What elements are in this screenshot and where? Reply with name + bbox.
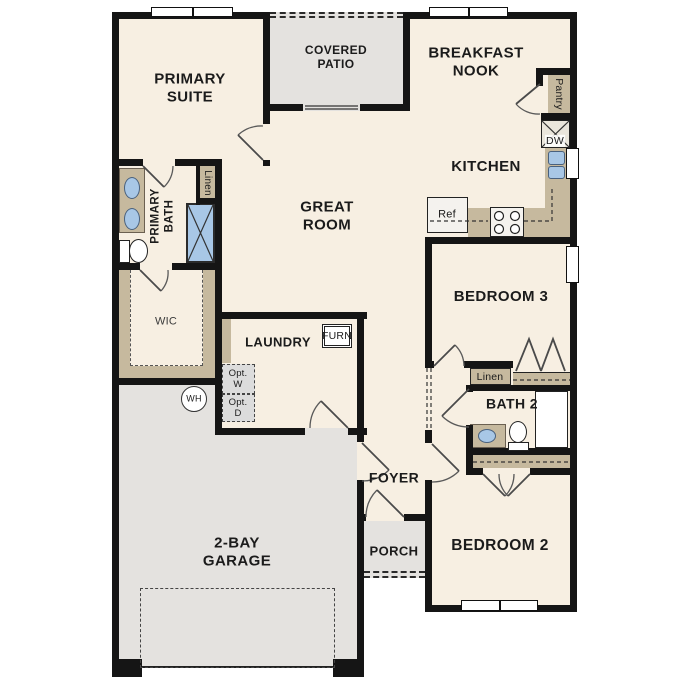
wall bbox=[199, 198, 215, 204]
primary-suite-window bbox=[151, 7, 233, 17]
label-pantry: Pantry bbox=[553, 78, 565, 110]
primary-sink-2 bbox=[124, 208, 140, 230]
room-label-garage: 2-BAY GARAGE bbox=[193, 534, 281, 569]
wall bbox=[570, 12, 577, 612]
wall bbox=[333, 659, 364, 677]
bedroom2-window bbox=[461, 600, 538, 611]
wall bbox=[466, 385, 473, 392]
room-label-porch: PORCH bbox=[370, 543, 419, 558]
wall bbox=[172, 263, 215, 270]
room-label-covered-patio: COVERED PATIO bbox=[298, 43, 374, 71]
label-dishwasher: DW bbox=[545, 135, 565, 147]
room-label-wic: WIC bbox=[155, 316, 177, 329]
bath2-toilet-bowl bbox=[509, 421, 527, 443]
wall bbox=[541, 113, 577, 120]
breakfast-nook-window bbox=[429, 7, 508, 17]
wall bbox=[215, 312, 367, 319]
kitchen-window bbox=[566, 148, 579, 179]
room-label-foyer: FOYER bbox=[369, 470, 419, 487]
wall bbox=[357, 514, 366, 521]
room-label-laundry: LAUNDRY bbox=[245, 334, 311, 349]
wall bbox=[215, 159, 222, 435]
wall bbox=[112, 263, 140, 270]
label-linen-hall: Linen bbox=[477, 371, 504, 383]
room-label-bath-2: BATH 2 bbox=[486, 396, 538, 413]
primary-shower bbox=[186, 203, 215, 263]
stove-box bbox=[490, 207, 524, 237]
wall bbox=[425, 480, 432, 612]
label-furnace: FURN bbox=[322, 330, 352, 342]
label-refrigerator: Ref bbox=[438, 209, 456, 222]
wall bbox=[112, 12, 119, 677]
wall bbox=[425, 237, 577, 244]
wall bbox=[263, 160, 270, 166]
room-label-kitchen: KITCHEN bbox=[451, 158, 520, 176]
label-linen-primary: Linen bbox=[201, 170, 213, 195]
wall bbox=[112, 659, 142, 677]
room-label-bedroom-2: BEDROOM 2 bbox=[451, 537, 548, 555]
room-label-great-room: GREAT ROOM bbox=[291, 198, 363, 233]
exterior-cutout bbox=[364, 578, 425, 612]
kitchen-sink-basin-2 bbox=[548, 166, 565, 179]
wall bbox=[464, 361, 513, 368]
wall bbox=[425, 237, 432, 368]
bath2-tub bbox=[535, 391, 568, 448]
wall bbox=[357, 480, 364, 677]
driveway-outline bbox=[140, 588, 335, 668]
room-label-primary-bath: PRIMARY BATH bbox=[149, 185, 176, 247]
bath2-sink bbox=[478, 429, 496, 443]
bedroom3-window bbox=[566, 246, 579, 283]
wall bbox=[357, 428, 364, 442]
wall bbox=[425, 430, 432, 443]
wall bbox=[536, 68, 543, 86]
wall bbox=[112, 378, 222, 385]
primary-sink-1 bbox=[124, 177, 140, 199]
wall bbox=[403, 12, 410, 111]
bedroom3-closet-shelf bbox=[513, 372, 570, 385]
wall bbox=[466, 468, 483, 475]
laundry-cabinet bbox=[222, 319, 231, 363]
room-label-breakfast-nook: BREAKFAST NOOK bbox=[417, 44, 535, 79]
wall bbox=[112, 159, 143, 166]
wall bbox=[425, 361, 434, 368]
bedroom2-closet-shelf bbox=[473, 455, 570, 468]
wall bbox=[357, 312, 364, 428]
label-water-heater: WH bbox=[186, 394, 201, 405]
room-label-bedroom-3: BEDROOM 3 bbox=[454, 288, 548, 306]
bath2-toilet-tank bbox=[508, 442, 529, 451]
porch-open-edge bbox=[364, 576, 425, 578]
porch-open-edge bbox=[364, 571, 425, 573]
label-optional-washer: Opt. W bbox=[224, 368, 252, 390]
primary-toilet-bowl bbox=[129, 239, 148, 263]
label-optional-dryer: Opt. D bbox=[224, 397, 252, 419]
floor-plan: PRIMARY SUITE COVERED PATIO BREAKFAST NO… bbox=[0, 0, 687, 687]
kitchen-sink-basin-1 bbox=[548, 151, 565, 165]
wall bbox=[530, 468, 570, 475]
wall bbox=[263, 104, 303, 111]
patio-open-edge bbox=[270, 16, 403, 18]
patio-open-edge bbox=[270, 12, 403, 14]
room-label-primary-suite: PRIMARY SUITE bbox=[144, 70, 236, 105]
wall bbox=[215, 428, 305, 435]
